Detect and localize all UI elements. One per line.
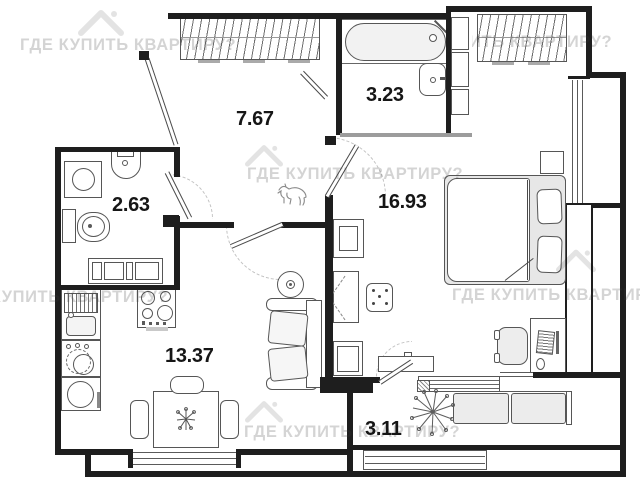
- wardrobe-foot: [243, 60, 265, 63]
- cabinet-drawer: [104, 262, 124, 280]
- window: [582, 80, 583, 203]
- window: [133, 452, 237, 453]
- room-label-kitchen-living: 13.37: [165, 345, 214, 368]
- washing-machine-drum: [72, 168, 95, 191]
- wall: [533, 372, 567, 378]
- window: [133, 464, 237, 465]
- tv-stand-nub: [404, 352, 412, 357]
- partition-line: [340, 133, 472, 137]
- office-chair: [497, 327, 528, 365]
- dishwasher-knob: [84, 344, 89, 349]
- watermark: ГДЕ КУПИТЬ КВАРТИРУ?: [0, 288, 214, 310]
- kitchen-faucet: [68, 312, 74, 318]
- floor-plan: ГДЕ КУПИТЬ КВАРТИРУ? ГДЕ КУПИТЬ КВАРТИРУ…: [0, 0, 640, 480]
- stove-knob: [142, 321, 145, 325]
- watermark: ГДЕ КУПИТЬ КВАРТИРУ?: [247, 165, 463, 184]
- coffee-table-center: [289, 283, 292, 286]
- wardrobe-foot: [288, 60, 310, 63]
- wall: [85, 471, 626, 477]
- dishwasher-knob: [75, 343, 80, 348]
- chair-armrest: [494, 330, 500, 340]
- wall: [565, 372, 626, 378]
- wall: [568, 76, 590, 79]
- wardrobe-foot: [528, 62, 550, 65]
- room-label-hallway: 7.67: [236, 108, 274, 131]
- wall: [325, 136, 336, 145]
- wall: [85, 455, 91, 473]
- sink-drain: [122, 160, 128, 166]
- sink-drain: [430, 77, 436, 83]
- dining-chair: [130, 400, 149, 439]
- wall: [55, 147, 61, 290]
- watermark: ГДЕ КУПИТЬ КВАРТИРУ?: [472, 33, 640, 55]
- dining-chair: [220, 400, 239, 439]
- chair-armrest: [494, 353, 500, 363]
- window-post: [128, 449, 133, 468]
- computer-screen: [556, 331, 559, 354]
- shelf: [451, 89, 469, 115]
- wardrobe-foot: [198, 60, 220, 63]
- cabinet-drawer: [126, 262, 133, 280]
- bench-back: [453, 391, 566, 392]
- balcony-bench: [511, 393, 566, 424]
- kitchen-sink: [66, 316, 96, 336]
- shelf: [451, 52, 469, 87]
- window: [500, 376, 533, 377]
- stove-front: [146, 327, 168, 331]
- house-icon: [556, 247, 596, 278]
- sofa-back: [306, 300, 322, 388]
- dishwasher-drum-inner: [73, 354, 94, 375]
- wall: [55, 449, 133, 455]
- nightstand: [540, 151, 564, 174]
- flower-icon: [174, 406, 198, 437]
- mattress: [447, 178, 530, 282]
- cabinet-drawer: [92, 262, 102, 280]
- fridge-handle: [97, 392, 100, 408]
- bathtub-basin: [345, 23, 446, 61]
- bedroom-dresser-inner: [337, 346, 359, 372]
- window-post: [236, 449, 241, 468]
- wall: [55, 290, 61, 455]
- wall: [178, 222, 234, 228]
- window: [133, 458, 237, 459]
- stove-knob: [156, 322, 159, 325]
- window: [577, 80, 578, 203]
- watermark: ГДЕ КУПИТЬ КВАРТИРУ?: [452, 286, 640, 308]
- bench-armrest: [566, 391, 572, 425]
- wall: [168, 13, 340, 19]
- sofa-cushion: [267, 310, 308, 347]
- bathroom-door: [300, 71, 328, 100]
- wall: [281, 222, 327, 228]
- room-label-bathroom: 3.23: [366, 84, 404, 107]
- stove-knob: [163, 322, 166, 325]
- wall: [163, 215, 179, 227]
- pouf-dots: [372, 289, 375, 292]
- dining-chair: [170, 376, 204, 394]
- wall: [55, 147, 180, 152]
- pouf: [366, 283, 393, 312]
- dog-icon: [276, 180, 310, 213]
- computer-icon: [536, 330, 555, 355]
- wardrobe-foot: [492, 62, 514, 65]
- balcony-glazing-line: [365, 463, 485, 464]
- tv-unit-inner: [339, 226, 358, 251]
- room-label-balcony: 3.11: [365, 418, 402, 441]
- wall: [336, 19, 342, 135]
- bathtub-faucet: [429, 34, 437, 42]
- dishwasher-knob: [66, 344, 71, 349]
- balcony-glazing: [363, 450, 487, 470]
- balcony-glazing-line: [365, 456, 485, 457]
- toilet-drain: [88, 224, 92, 228]
- wall: [174, 147, 180, 177]
- wall: [592, 203, 626, 208]
- cabinet-drawer: [135, 262, 159, 280]
- window: [572, 80, 573, 203]
- bedroom-cabinet: [333, 271, 359, 323]
- wall: [446, 12, 451, 135]
- toilet-tank: [62, 209, 76, 243]
- balcony-parapet: [347, 445, 626, 450]
- watermark: ГДЕ КУПИТЬ КВАРТИРУ?: [244, 423, 460, 442]
- watermark: ГДЕ КУПИТЬ КВАРТИРУ?: [20, 36, 236, 55]
- stove-knob: [149, 322, 152, 325]
- entry-door: [145, 58, 179, 146]
- blanket-edge: [527, 180, 528, 280]
- wall: [336, 13, 448, 19]
- sofa-cushion: [267, 345, 308, 382]
- window: [500, 372, 533, 373]
- toilet-bowl-inner: [82, 216, 105, 237]
- room-label-bedroom: 16.93: [378, 191, 427, 214]
- balcony-bench: [453, 393, 509, 424]
- pillow: [536, 189, 562, 225]
- computer-mouse: [536, 358, 545, 370]
- fridge-circle: [67, 381, 94, 408]
- room-label-toilet: 2.63: [112, 194, 150, 217]
- wall: [446, 6, 592, 12]
- shelf: [451, 17, 469, 50]
- wall: [238, 449, 350, 455]
- wall: [620, 72, 626, 477]
